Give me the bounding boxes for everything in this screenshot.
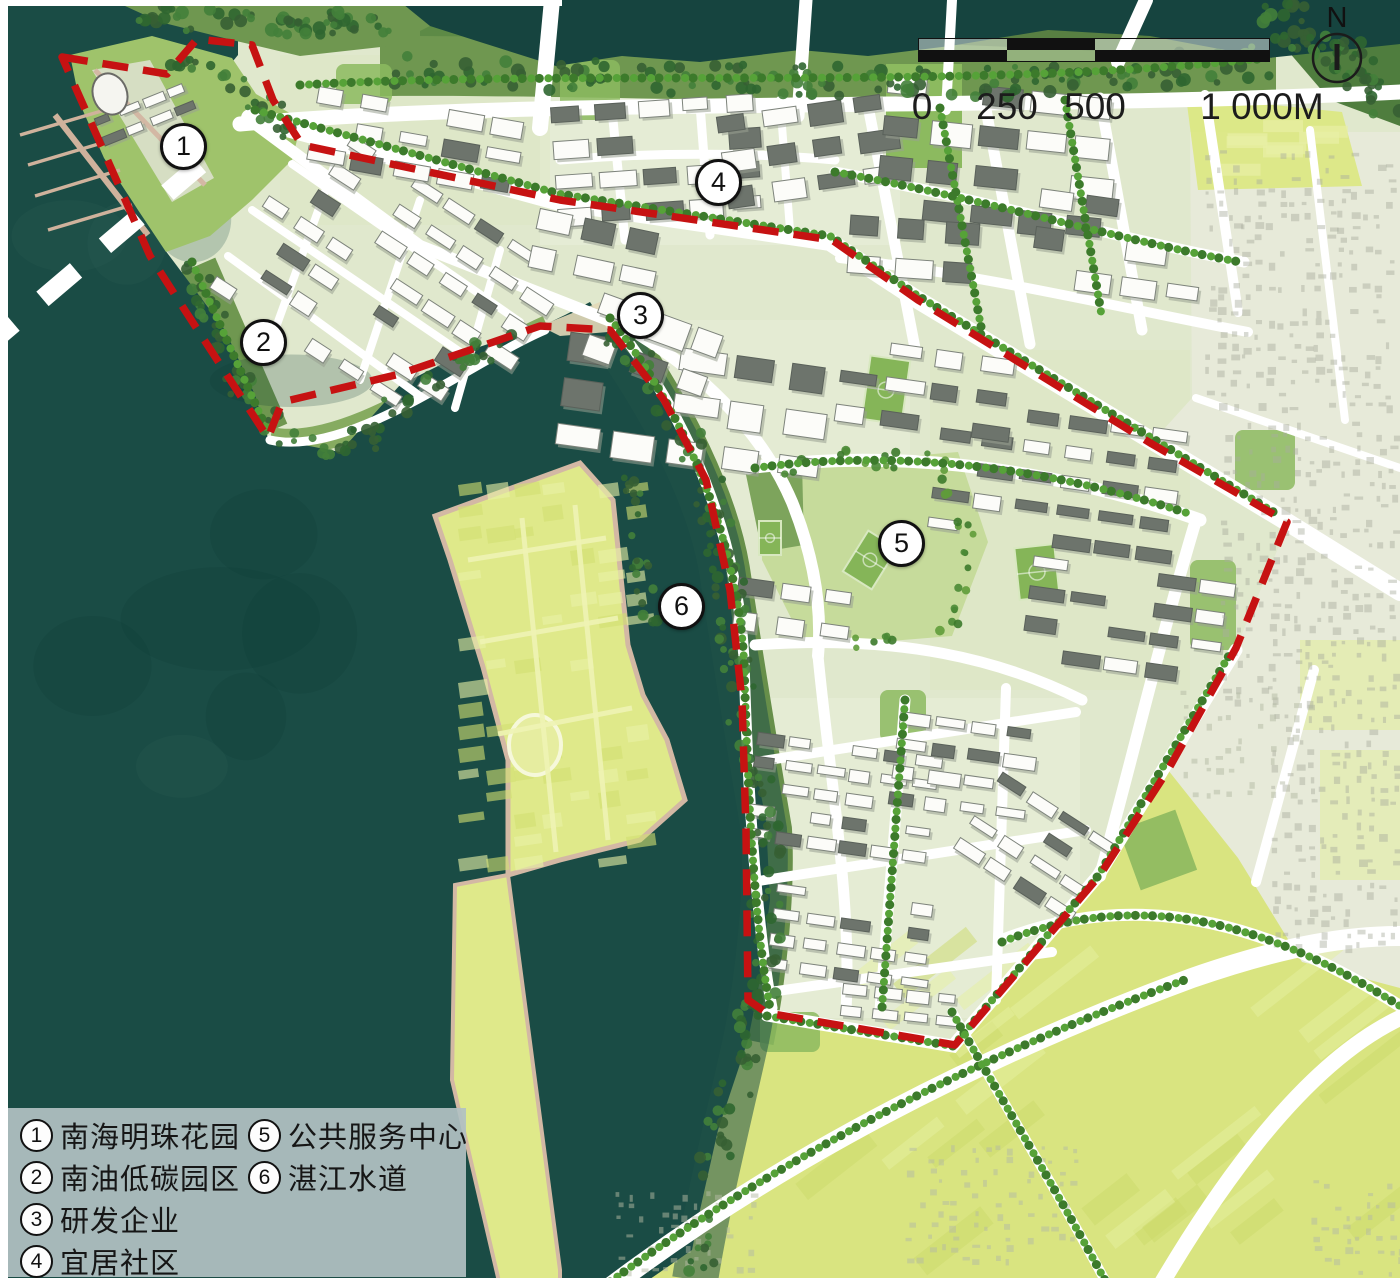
legend-item-5: 5公共服务中心	[248, 1114, 468, 1156]
legend-label: 宜居社区	[60, 1240, 180, 1282]
legend-column-1: 1南海明珠花园2南油低碳园区3研发企业4宜居社区	[20, 1114, 240, 1282]
scale-bar-segment	[919, 50, 1007, 61]
marker-number: 2	[256, 329, 271, 356]
map-marker-6: 6	[658, 583, 705, 630]
legend-column-2: 5公共服务中心6湛江水道	[248, 1114, 468, 1198]
map-legend: 1南海明珠花园2南油低碳园区3研发企业4宜居社区5公共服务中心6湛江水道	[8, 1108, 466, 1277]
marker-number: 3	[633, 302, 648, 329]
legend-label: 南海明珠花园	[60, 1114, 240, 1156]
legend-item-1: 1南海明珠花园	[20, 1114, 240, 1156]
legend-item-4: 4宜居社区	[20, 1240, 240, 1282]
map-marker-1: 1	[160, 123, 207, 170]
scale-bar-segment	[1095, 50, 1269, 61]
marker-number: 4	[711, 169, 726, 196]
marker-number: 6	[674, 593, 689, 620]
legend-label: 湛江水道	[288, 1156, 408, 1198]
map-marker-3: 3	[617, 292, 664, 339]
legend-number-badge: 2	[20, 1161, 53, 1194]
map-marker-4: 4	[695, 159, 742, 206]
marker-number: 5	[894, 530, 909, 557]
map-marker-5: 5	[878, 520, 925, 567]
scale-label: 500	[1064, 88, 1126, 125]
marker-number: 1	[176, 133, 191, 160]
scale-label: 250	[976, 88, 1038, 125]
legend-number-badge: 4	[20, 1245, 53, 1278]
legend-item-6: 6湛江水道	[248, 1156, 468, 1198]
north-arrow-icon	[1305, 28, 1369, 88]
north-arrow: N	[1305, 2, 1369, 88]
legend-number-badge: 3	[20, 1203, 53, 1236]
scale-bar: 02505001 000M	[918, 38, 1270, 102]
legend-item-2: 2南油低碳园区	[20, 1156, 240, 1198]
legend-item-3: 3研发企业	[20, 1198, 240, 1240]
legend-label: 公共服务中心	[288, 1114, 468, 1156]
scale-bar-labels: 02505001 000M	[918, 62, 1270, 102]
legend-label: 研发企业	[60, 1198, 180, 1240]
scale-bar-segment	[1007, 39, 1095, 50]
scale-bar-segment	[1007, 50, 1095, 61]
legend-number-badge: 1	[20, 1119, 53, 1152]
map-marker-2: 2	[240, 319, 287, 366]
legend-number-badge: 5	[248, 1119, 281, 1152]
scale-bar-segment	[919, 39, 1007, 50]
scale-label: 0	[912, 88, 933, 125]
scale-label: 1 000M	[1200, 88, 1323, 125]
scale-bar-segment	[1095, 39, 1269, 50]
scale-bar-segments	[918, 38, 1270, 62]
urban-plan-map: 123456 02505001 000M N 1南海明珠花园2南油低碳园区3研发…	[0, 0, 1400, 1286]
legend-number-badge: 6	[248, 1161, 281, 1194]
legend-label: 南油低碳园区	[60, 1156, 240, 1198]
